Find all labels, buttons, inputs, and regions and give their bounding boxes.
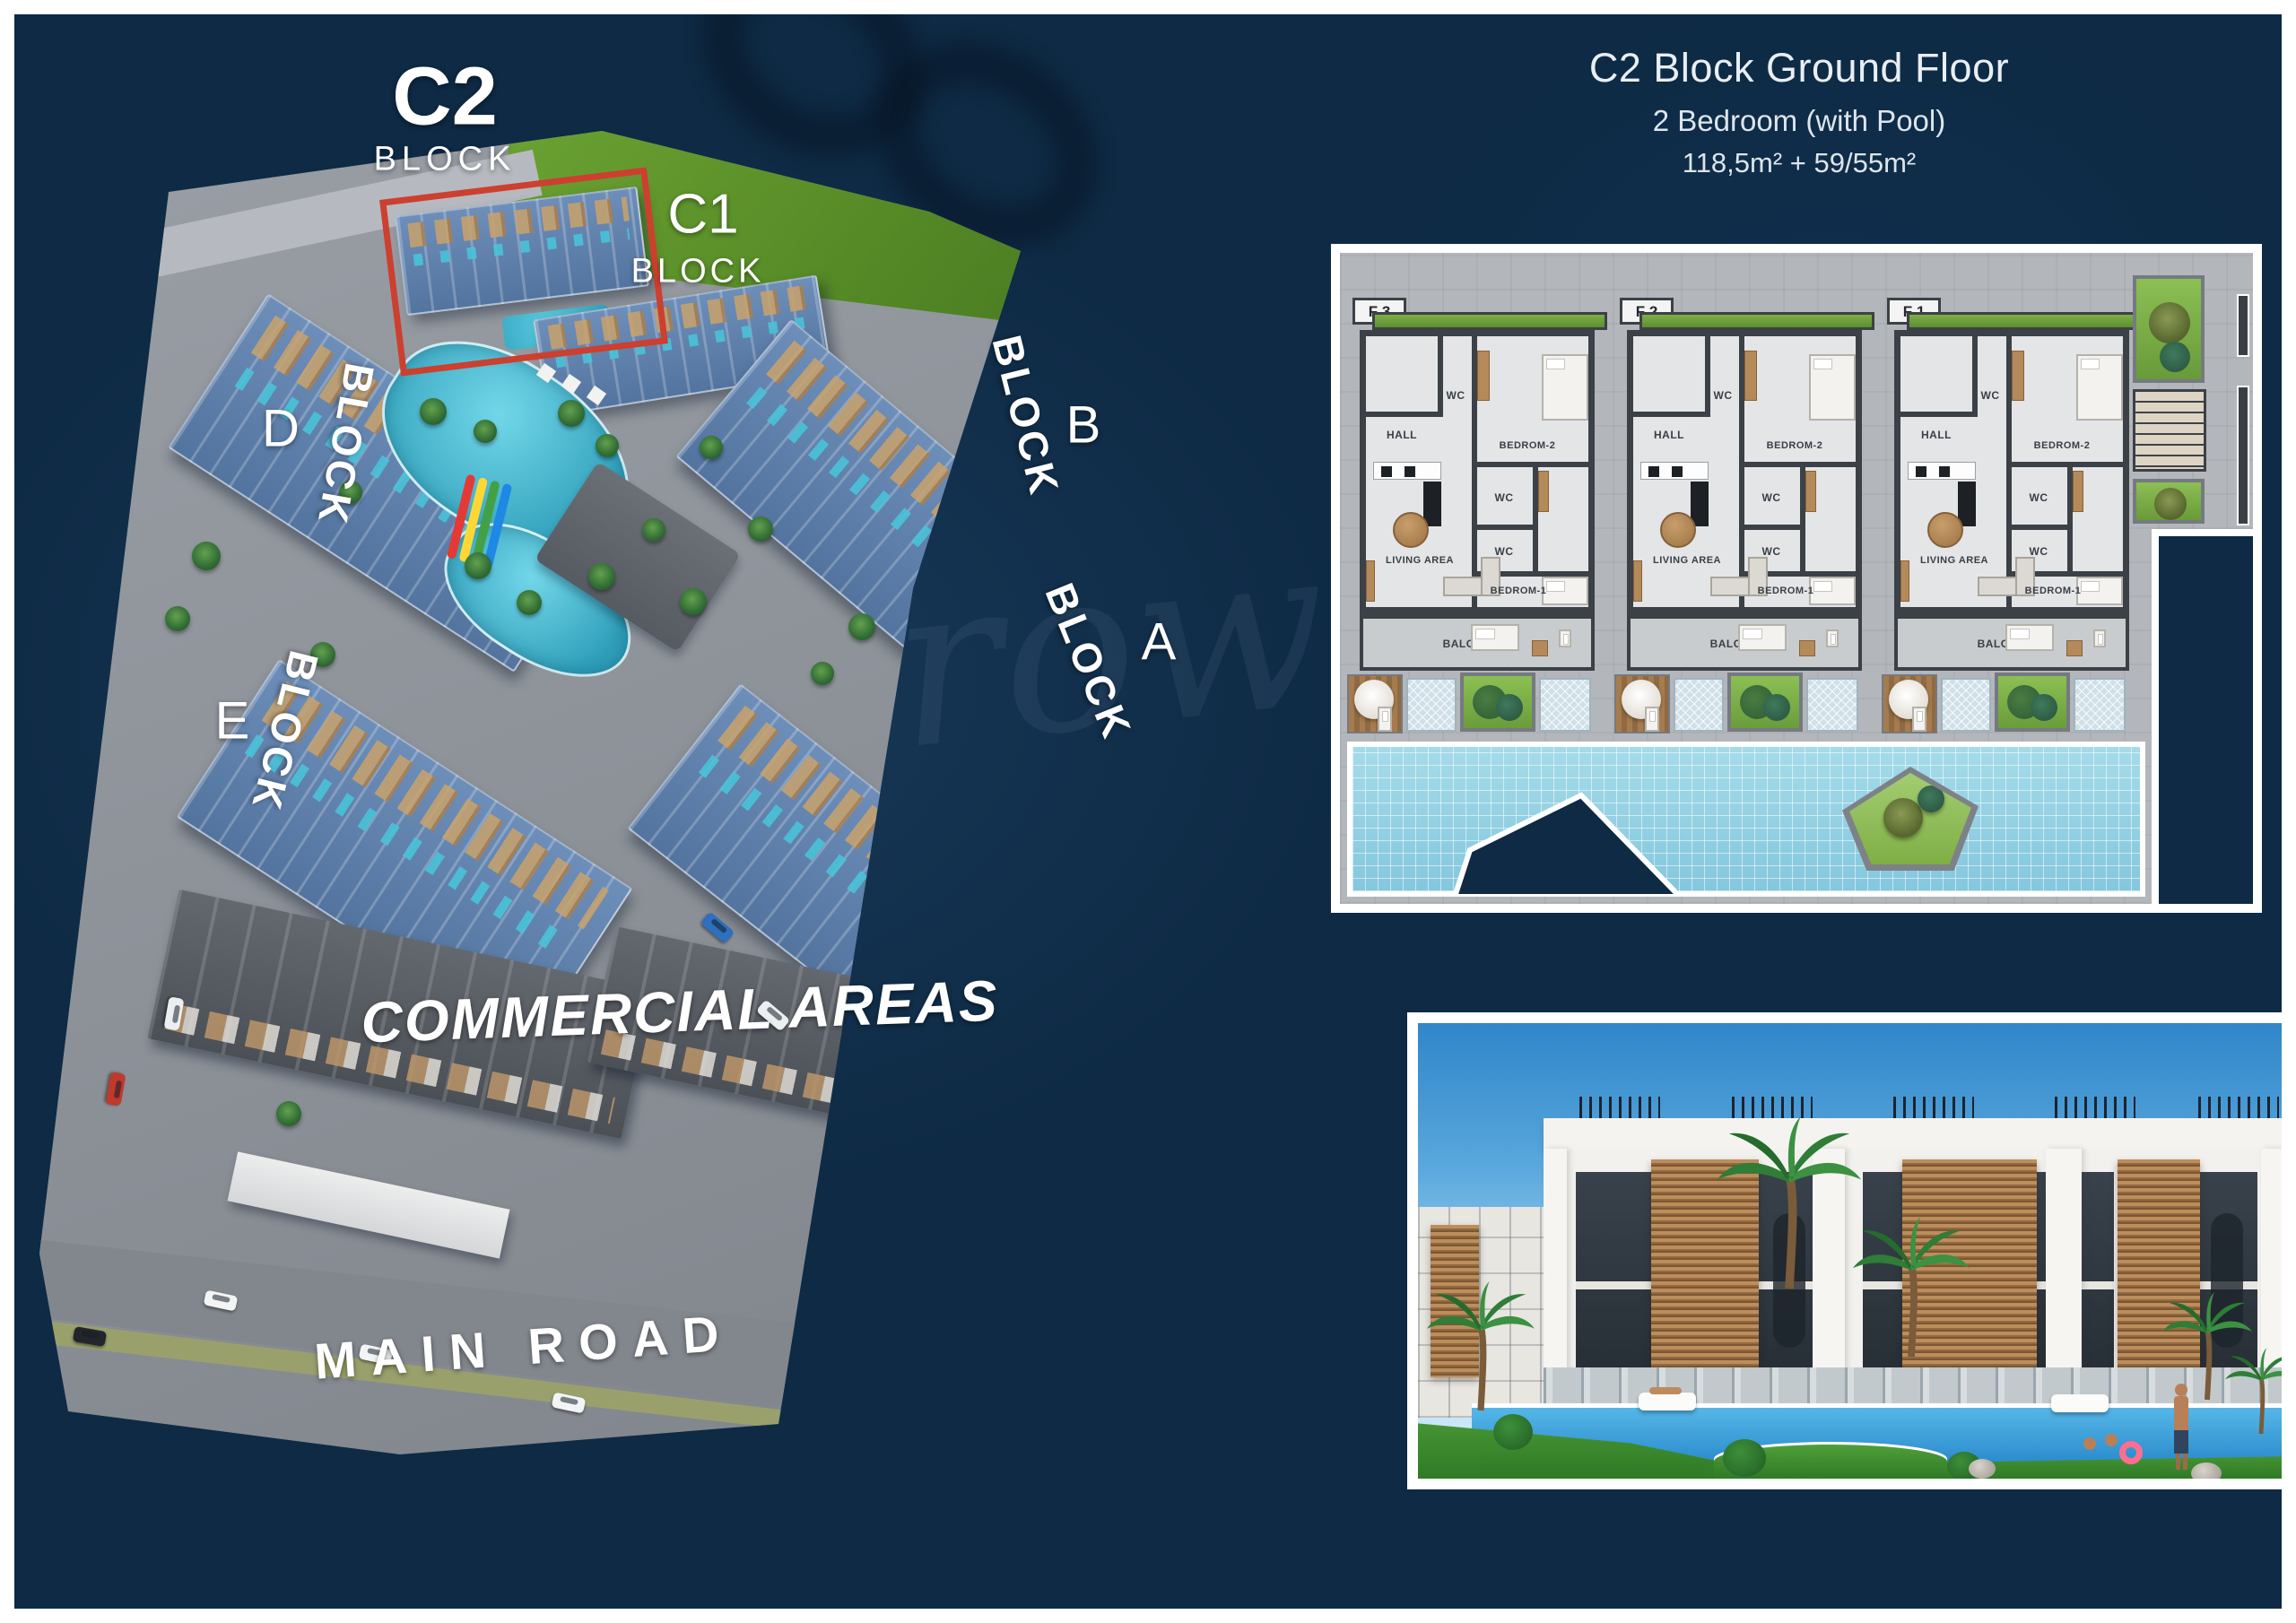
panel-cutout: [2152, 529, 2253, 904]
unit-balcony: BALCONY: [1627, 613, 1862, 671]
room-label-wc: WC: [1495, 545, 1514, 558]
car: [700, 911, 735, 943]
furniture-kitchen-counter: [1640, 462, 1709, 480]
room-label-wc: WC: [1762, 545, 1781, 558]
furniture-kitchen-counter: [1908, 462, 1976, 480]
furniture-bed: [1809, 354, 1856, 421]
block-a-word: BLOCK: [1036, 577, 1143, 747]
furniture-wardrobe: [1538, 471, 1549, 512]
furniture-chair: [1559, 629, 1571, 647]
furniture-lounger: [1378, 707, 1392, 732]
c2-highlight-box: [379, 167, 668, 376]
entrance-canopy: [228, 1151, 510, 1258]
palm-tree: [165, 606, 190, 631]
furniture-wardrobe: [1744, 351, 1757, 401]
block-a-letter: A: [1142, 612, 1177, 673]
room-label-wc: WC: [1981, 389, 2000, 402]
room-label-wc: WC: [2030, 491, 2048, 504]
side-door: [2237, 386, 2249, 525]
floor-plan-title: C2 Block Ground Floor: [1476, 45, 2122, 91]
furniture-bed: [1542, 354, 1588, 421]
furniture-table: [1532, 640, 1548, 656]
block-d-letter: D: [262, 399, 300, 459]
furniture-bed: [2076, 577, 2123, 605]
pool-deck: [1882, 674, 1937, 733]
unit-planter: [1907, 312, 2142, 330]
unit-balcony: BALCONY: [1894, 613, 2129, 671]
room-label-bedroom2: BEDROM-2: [2034, 440, 2091, 451]
room-label-living: LIVING AREA: [1920, 555, 1988, 566]
safety-net: [1674, 678, 1724, 732]
palm-tree: [642, 518, 665, 542]
exterior-render-panel: [1407, 1012, 2295, 1489]
room-label-bedroom2: BEDROM-2: [1767, 440, 1823, 451]
furniture-dining-table: [1393, 512, 1429, 548]
room-label-hall: HALL: [1654, 429, 1684, 441]
furniture-bed: [1809, 577, 1856, 605]
unit-interior: HALL WC BEDROM-2 WC WC LIVING AREA BEDRO…: [1627, 330, 1862, 613]
palm-tree: [680, 588, 707, 615]
pool-deck: [1614, 674, 1670, 733]
palm-tree: [811, 662, 834, 685]
brochure-canvas: row: [0, 0, 2296, 1623]
furniture-lounger: [1645, 707, 1659, 732]
safety-net: [1539, 678, 1591, 732]
palm-tree: [276, 1101, 301, 1126]
c2-block-label: C2: [392, 50, 498, 144]
furniture-daybed: [2005, 624, 2054, 651]
palm-trees: [1418, 1023, 2284, 1479]
c1-block-label: C1: [667, 183, 738, 247]
room-label-wc: WC: [2030, 545, 2048, 558]
floor-plan-title-block: C2 Block Ground Floor 2 Bedroom (with Po…: [1476, 45, 2122, 179]
side-garden: [2133, 275, 2205, 383]
palm-tree: [192, 542, 221, 570]
c1-block-sub: BLOCK: [631, 253, 765, 291]
furniture-table: [2066, 640, 2083, 656]
floor-plan-area: 118,5m² + 59/55m²: [1476, 147, 2122, 179]
furniture-wardrobe: [1477, 351, 1490, 401]
c2-block-sub: BLOCK: [374, 141, 517, 179]
furniture-daybed: [1471, 624, 1519, 651]
unit-planter: [1372, 312, 1607, 330]
car: [106, 1072, 126, 1106]
palm-tree: [748, 516, 773, 542]
palm-tree: [517, 590, 542, 615]
deck-planter: [1727, 673, 1803, 732]
furniture-lounger: [1912, 707, 1926, 732]
palm-tree: [465, 552, 491, 579]
room-label-hall: HALL: [1387, 429, 1417, 441]
room-label-wc: WC: [1447, 389, 1465, 402]
furniture-wardrobe: [1805, 471, 1816, 512]
block-b-word: BLOCK: [983, 330, 1070, 501]
room-label-bedroom1: BEDROM-1: [2025, 586, 2082, 596]
unit-balcony: BALCONY: [1360, 613, 1595, 671]
furniture-kitchen-counter: [1373, 462, 1441, 480]
side-garden: [2133, 479, 2205, 524]
palm-tree: [558, 400, 585, 427]
palm-tree: [700, 436, 723, 459]
room-label-bedroom1: BEDROM-1: [1758, 586, 1814, 596]
room-label-wc: WC: [1762, 491, 1781, 504]
safety-net: [1806, 678, 1858, 732]
block-e-letter: E: [215, 691, 250, 751]
palm-tree: [848, 613, 875, 640]
floor-plan-unit: F 2: [1614, 312, 1876, 741]
furniture-dining-table: [1660, 512, 1696, 548]
deck-planter: [1995, 673, 2070, 732]
palm-tree: [474, 420, 497, 443]
exterior-stairs: [2133, 389, 2206, 472]
palm-tree: [420, 398, 447, 425]
palm-tree: [596, 434, 619, 457]
furniture-bed: [1542, 577, 1588, 605]
unit-interior: HALL WC BEDROM-2 WC WC LIVING AREA BEDRO…: [1360, 330, 1595, 613]
furniture-bed: [2076, 354, 2123, 421]
side-door: [2237, 294, 2249, 357]
safety-net: [1941, 678, 1991, 732]
furniture-daybed: [1738, 624, 1787, 651]
furniture-wardrobe: [1366, 560, 1375, 602]
room-label-wc: WC: [1495, 491, 1514, 504]
furniture-chair: [2093, 629, 2106, 647]
furniture-table: [1799, 640, 1815, 656]
floor-plan-subtitle: 2 Bedroom (with Pool): [1476, 104, 2122, 138]
safety-net: [1406, 678, 1457, 732]
floor-plan-unit: F 1: [1882, 312, 2144, 741]
room-label-bedroom2: BEDROM-2: [1500, 440, 1556, 451]
room-label-hall: HALL: [1921, 429, 1952, 441]
room-label-wc: WC: [1714, 389, 1733, 402]
room-label-living: LIVING AREA: [1386, 555, 1454, 566]
pool-notch: [1347, 742, 2145, 897]
room-label-living: LIVING AREA: [1653, 555, 1721, 566]
pool-deck: [1347, 674, 1403, 733]
site-plan: C2 BLOCK C1 BLOCK D BLOCK BLOCK B BLOCK …: [14, 14, 1180, 1539]
furniture-dining-table: [1927, 512, 1963, 548]
furniture-wardrobe: [1900, 560, 1909, 602]
furniture-chair: [1826, 629, 1839, 647]
palm-tree: [588, 563, 615, 590]
unit-interior: HALL WC BEDROM-2 WC WC LIVING AREA BEDRO…: [1894, 330, 2129, 613]
furniture-wardrobe: [2012, 351, 2024, 401]
furniture-wardrobe: [1633, 560, 1642, 602]
block-b-letter: B: [1066, 395, 1101, 456]
room-label-bedroom1: BEDROM-1: [1491, 586, 1547, 596]
floor-plan-panel: F 3: [1331, 244, 2262, 913]
deck-planter: [1460, 673, 1535, 732]
floor-plan-unit: F 3: [1347, 312, 1609, 741]
unit-planter: [1639, 312, 1874, 330]
furniture-wardrobe: [2073, 471, 2083, 512]
safety-net: [2074, 678, 2126, 732]
